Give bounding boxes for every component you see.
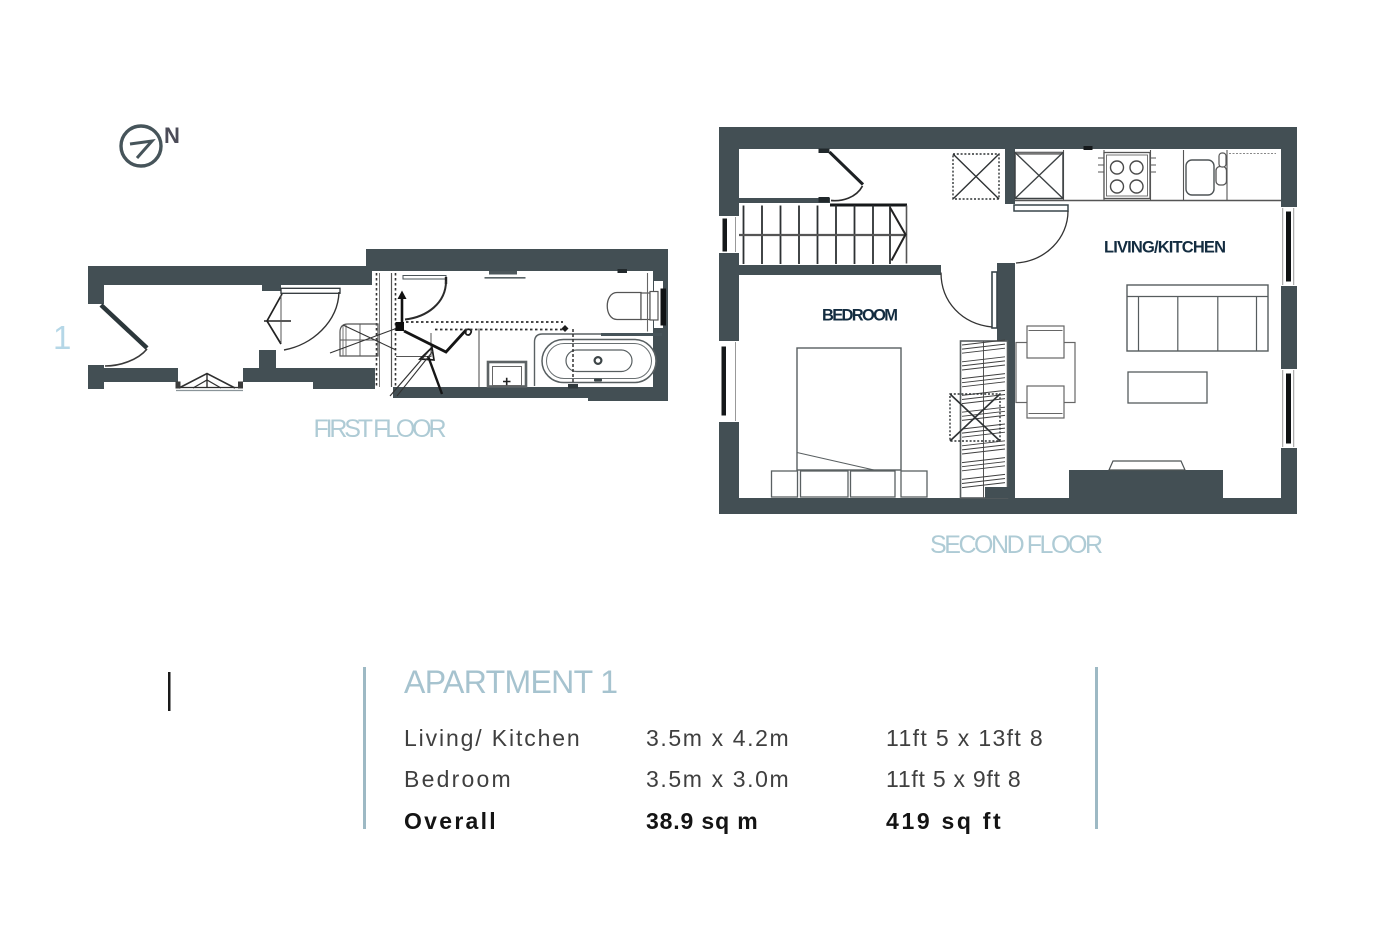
svg-text:38.9 sq m: 38.9 sq m — [646, 808, 758, 834]
svg-text:3.5m x 4.2m: 3.5m x 4.2m — [646, 725, 789, 751]
svg-text:APARTMENT 1: APARTMENT 1 — [404, 664, 618, 700]
svg-text:1: 1 — [53, 319, 71, 356]
svg-text:Overall: Overall — [404, 808, 496, 834]
svg-text:419 sq ft: 419 sq ft — [886, 808, 1001, 834]
svg-text:BEDROOM: BEDROOM — [822, 307, 898, 325]
svg-text:N: N — [164, 123, 180, 148]
svg-text:LIVING/KITCHEN: LIVING/KITCHEN — [1104, 239, 1226, 257]
svg-text:3.5m x 3.0m: 3.5m x 3.0m — [646, 766, 789, 792]
svg-text:SECOND FLOOR: SECOND FLOOR — [930, 531, 1103, 559]
svg-text:FIRST FLOOR: FIRST FLOOR — [314, 415, 447, 443]
svg-text:Living/ Kitchen: Living/ Kitchen — [404, 725, 580, 751]
svg-text:11ft 5 x 13ft 8: 11ft 5 x 13ft 8 — [886, 725, 1043, 751]
svg-text:11ft 5 x 9ft 8: 11ft 5 x 9ft 8 — [886, 766, 1021, 792]
